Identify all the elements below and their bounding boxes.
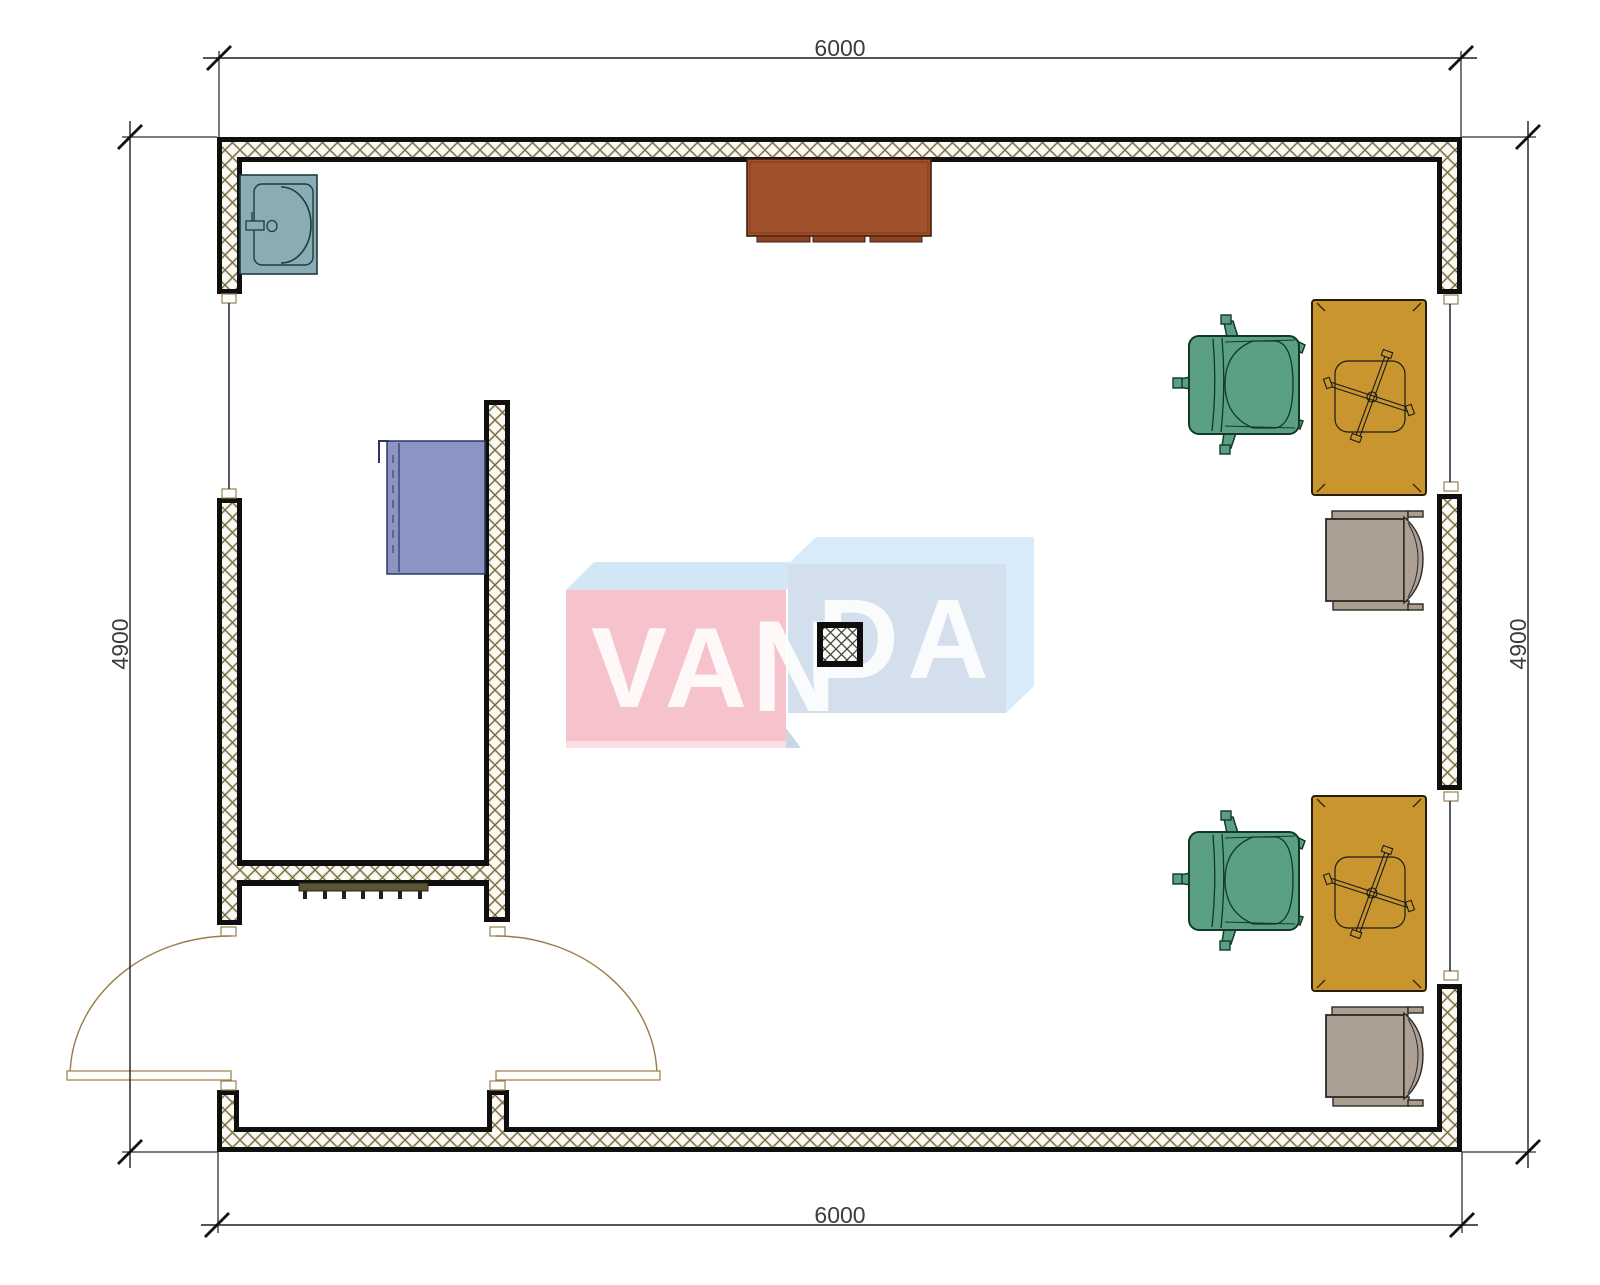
svg-text:6000: 6000 <box>814 35 865 61</box>
svg-text:6000: 6000 <box>814 1202 865 1228</box>
svg-text:A: A <box>907 576 989 702</box>
svg-text:4900: 4900 <box>1505 618 1531 669</box>
svg-text:4900: 4900 <box>107 618 133 669</box>
svg-text:V: V <box>591 605 667 732</box>
svg-text:A: A <box>665 605 747 732</box>
